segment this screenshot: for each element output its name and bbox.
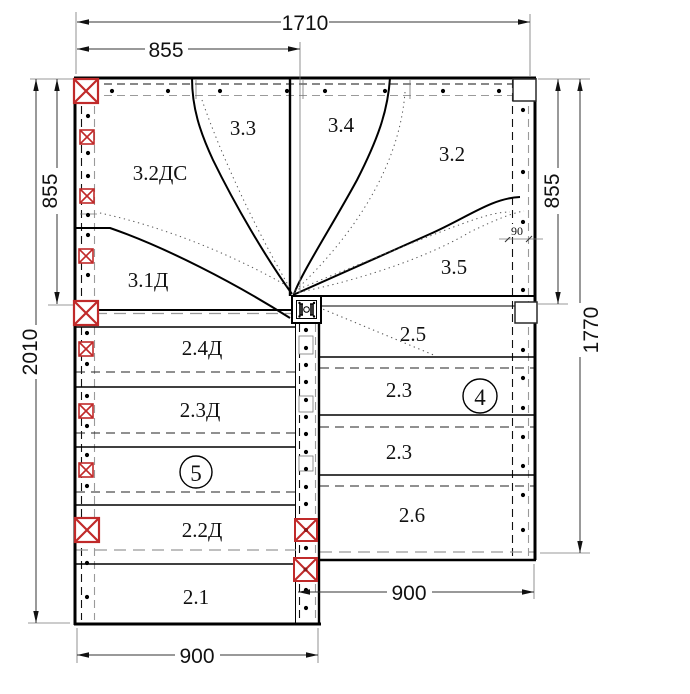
flight-4-number: 4 <box>474 385 486 410</box>
label-3-3: 3.3 <box>230 116 256 140</box>
label-2-6: 2.6 <box>399 503 425 527</box>
flight-5-number: 5 <box>190 461 202 486</box>
dim-855-left: 855 <box>39 173 62 208</box>
right-flight-labels: 2.5 2.3 2.3 2.6 <box>386 322 426 527</box>
label-2-4d: 2.4Д <box>182 336 223 360</box>
staircase-plan-page: 1710 855 855 2010 <box>0 0 690 694</box>
dim-855-right: 855 <box>541 173 564 208</box>
dim-2010: 2010 <box>19 329 42 376</box>
dim-900-right: 900 <box>391 582 426 605</box>
dimension-right-total: 1770 <box>538 79 603 553</box>
label-2-3d: 2.3Д <box>180 398 221 422</box>
dimension-bottom-left-flight: 900 <box>77 628 318 668</box>
top-band-fastener-dots <box>110 89 501 93</box>
staircase-plan-drawing: 1710 855 855 2010 <box>0 0 690 694</box>
post-top-right <box>513 79 536 101</box>
label-3-2: 3.2 <box>439 142 465 166</box>
dimension-top-total: 1710 <box>76 11 530 76</box>
dim-1770: 1770 <box>580 307 603 354</box>
winder-labels: 3.2ДС 3.3 3.4 3.2 3.1Д 3.5 <box>128 113 467 292</box>
post-large-top-left <box>74 79 98 103</box>
label-2-3b: 2.3 <box>386 440 412 464</box>
label-3-1d: 3.1Д <box>128 268 169 292</box>
dim-855-top: 855 <box>148 39 183 62</box>
top-stringer-band <box>78 80 533 99</box>
label-2-2d: 2.2Д <box>182 518 223 542</box>
flight-number-4: 4 <box>463 379 497 413</box>
dimension-left-total: 2010 <box>18 79 70 623</box>
label-3-5: 3.5 <box>441 255 467 279</box>
label-3-4: 3.4 <box>328 113 355 137</box>
dim-1710: 1710 <box>282 12 329 35</box>
post-large-bottom-left <box>75 518 99 542</box>
dimension-right-upper: 855 <box>538 79 568 304</box>
label-2-3a: 2.3 <box>386 378 412 402</box>
post-large-mid-left <box>74 301 98 325</box>
label-2-1: 2.1 <box>183 585 209 609</box>
dim-90: 90 <box>511 224 523 238</box>
label-2-5: 2.5 <box>400 322 426 346</box>
flight-number-5: 5 <box>180 456 212 488</box>
post-center-stringer-upper <box>295 519 317 541</box>
center-newel-post-symbol <box>292 296 321 323</box>
post-mid-right <box>515 302 537 323</box>
dim-900-bottom: 900 <box>179 645 214 668</box>
dimension-bottom-right-flight: 900 <box>298 564 534 605</box>
post-center-stringer-lower <box>294 558 317 581</box>
posts <box>74 79 317 581</box>
label-3-2ds: 3.2ДС <box>133 161 188 185</box>
